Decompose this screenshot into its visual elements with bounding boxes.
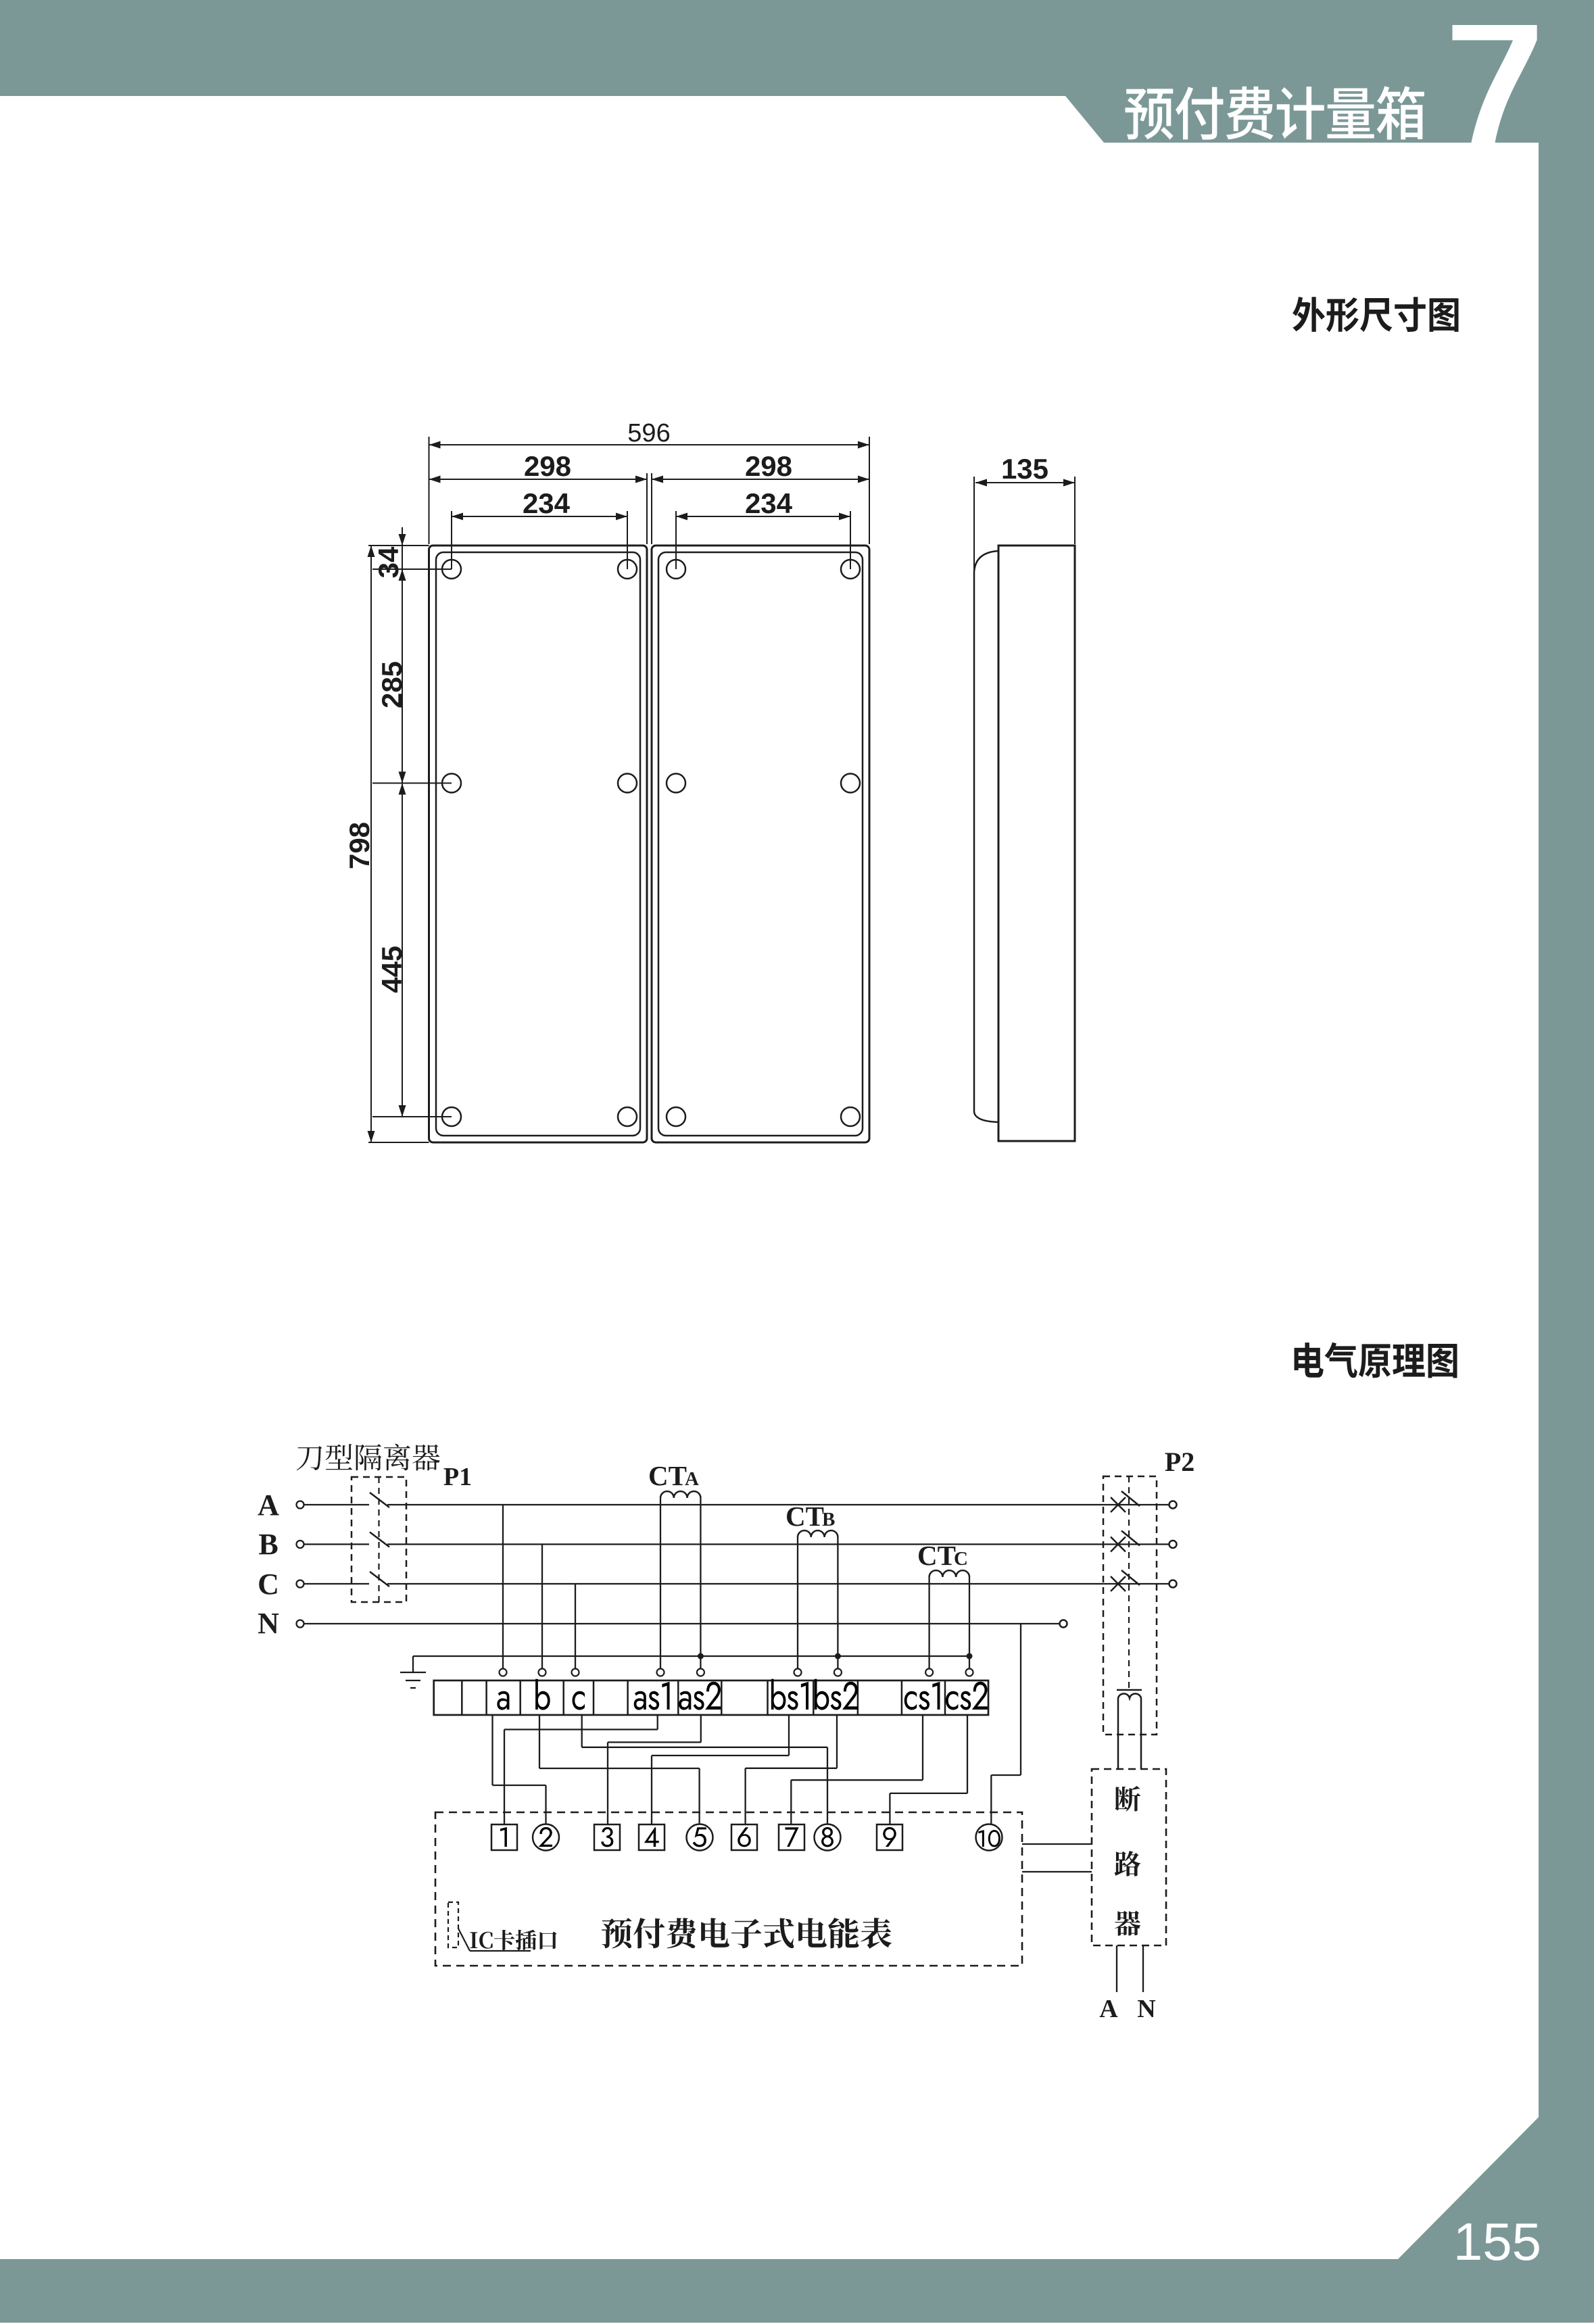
svg-text:798: 798 bbox=[343, 822, 375, 869]
svg-text:N: N bbox=[1137, 1995, 1155, 2023]
svg-text:C: C bbox=[954, 1548, 968, 1570]
svg-text:234: 234 bbox=[745, 487, 793, 519]
svg-text:155: 155 bbox=[1453, 2212, 1541, 2271]
svg-text:N: N bbox=[258, 1607, 279, 1640]
svg-text:P1: P1 bbox=[443, 1463, 472, 1491]
svg-text:A: A bbox=[685, 1468, 699, 1490]
svg-text:P2: P2 bbox=[1165, 1447, 1194, 1477]
svg-text:445: 445 bbox=[376, 946, 408, 993]
svg-text:285: 285 bbox=[376, 661, 408, 708]
svg-text:135: 135 bbox=[1001, 453, 1048, 485]
svg-text:298: 298 bbox=[745, 450, 792, 482]
svg-text:C: C bbox=[258, 1568, 279, 1601]
svg-text:298: 298 bbox=[524, 450, 571, 482]
svg-text:34: 34 bbox=[372, 546, 404, 578]
svg-text:A: A bbox=[1099, 1995, 1118, 2023]
svg-text:CT: CT bbox=[786, 1501, 824, 1532]
svg-text:B: B bbox=[822, 1509, 835, 1530]
svg-text:CT: CT bbox=[917, 1540, 956, 1571]
svg-text:B: B bbox=[258, 1528, 278, 1561]
svg-text:596: 596 bbox=[627, 419, 670, 447]
svg-text:234: 234 bbox=[523, 487, 571, 519]
svg-text:A: A bbox=[258, 1488, 279, 1522]
svg-text:CT: CT bbox=[648, 1460, 687, 1491]
